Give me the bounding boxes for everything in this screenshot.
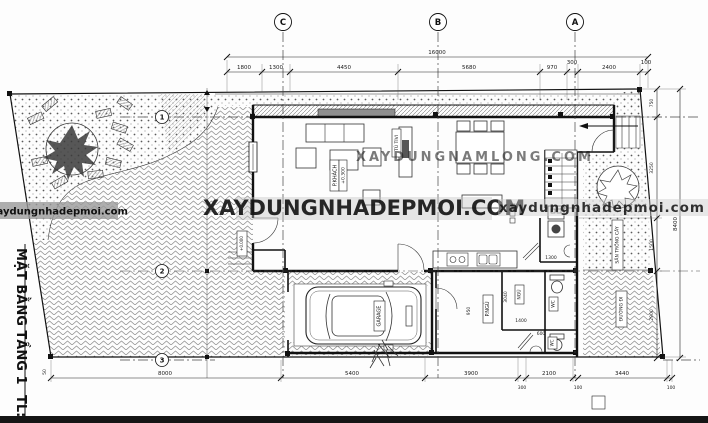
label-wc-b: WC: [550, 339, 555, 346]
dim-right-1: 750: [649, 99, 655, 108]
dim-bot-3: 3900: [464, 371, 478, 377]
watermark-right: xaydungnhadepmoi.com: [499, 200, 705, 216]
label-garage: GARAGE: [377, 306, 383, 327]
dim-bot-4: 300: [518, 385, 527, 391]
floorplan-drawing: C B A 1 2 3 16000 180: [0, 0, 708, 423]
dim-bot-offset: 50: [42, 369, 48, 375]
dim-top-7: 2400: [602, 65, 616, 71]
watermark-blue: XAYDUNGNAMLONG.COM: [356, 150, 594, 165]
grid-bubbles-columns: C B A: [275, 14, 584, 31]
floorplan-sheet: C B A 1 2 3 16000 180: [0, 0, 708, 423]
dim-bot-2: 5400: [345, 371, 359, 377]
dim-int-600: 600: [537, 331, 546, 337]
grid-col-a: A: [572, 18, 579, 28]
dim-top-8: 100: [641, 60, 652, 66]
dim-top-6: 300: [567, 60, 578, 66]
dim-top-5: 970: [547, 65, 558, 71]
dim-int-3040: 3040: [503, 291, 509, 303]
dim-bot-7: 3440: [615, 371, 629, 377]
bathroom-fixtures: [530, 275, 564, 352]
grid-row-2: 2: [160, 268, 165, 276]
label-walkway: ĐƯỜNG ĐI: [618, 297, 625, 322]
top-walkway-strip: [215, 94, 640, 106]
dim-top-total: 16000: [428, 50, 446, 56]
dim-int-1300: 1300: [545, 255, 557, 261]
dim-top-4: 5680: [462, 65, 476, 71]
label-living-level: +0.300: [341, 167, 347, 184]
dim-top-1: 1800: [237, 65, 251, 71]
dim-bot-6: 100: [574, 385, 583, 391]
dim-bot-1: 8000: [158, 371, 172, 377]
dim-top-3: 4450: [337, 65, 351, 71]
watermark-left: xaydungnhadepmoi.com: [0, 207, 128, 218]
side-entry: [579, 116, 640, 148]
dim-int-1400: 1400: [515, 318, 527, 324]
label-living: P.KHÁCH: [332, 165, 339, 187]
dim-top-2: 1300: [269, 65, 283, 71]
sheet-title: MẶT BẰNG TẦNG 1 TL:1/100: [13, 244, 31, 423]
dim-right-2: 3250: [649, 162, 655, 174]
note-tag-box: [592, 396, 605, 409]
label-entry-level: +0.000: [239, 236, 244, 251]
watermark-center: XAYDUNGNHADEPMOI.COM: [203, 196, 525, 220]
sheet-bottom-border: [0, 416, 708, 423]
car: [306, 281, 421, 350]
grid-col-c: C: [280, 18, 286, 28]
dim-bot-8: 100: [667, 385, 676, 391]
grid-row-1: 1: [160, 114, 165, 122]
label-bedroom: P.NGỦ: [483, 301, 491, 316]
plan-title: MẶT BẰNG TẦNG 1: [13, 248, 31, 385]
dim-right-3: 1500: [649, 239, 655, 251]
dim-bot-5: 2100: [542, 371, 556, 377]
grid-col-b: B: [435, 18, 441, 28]
dim-right-total: 8400: [673, 217, 679, 231]
svg-text:MẶT BẰNG TẦNG 1 TL:1/100: MẶT BẰNG TẦNG 1 TL:1/100: [13, 248, 31, 423]
label-wc-a: WC: [551, 300, 557, 308]
dim-bottom: 8000 5400 3900 300 2100 100 3440 100 50: [42, 356, 675, 391]
dim-int-950: 950: [466, 307, 472, 316]
grid-row-3: 3: [160, 357, 165, 365]
dim-right-4: 2900: [649, 309, 655, 321]
